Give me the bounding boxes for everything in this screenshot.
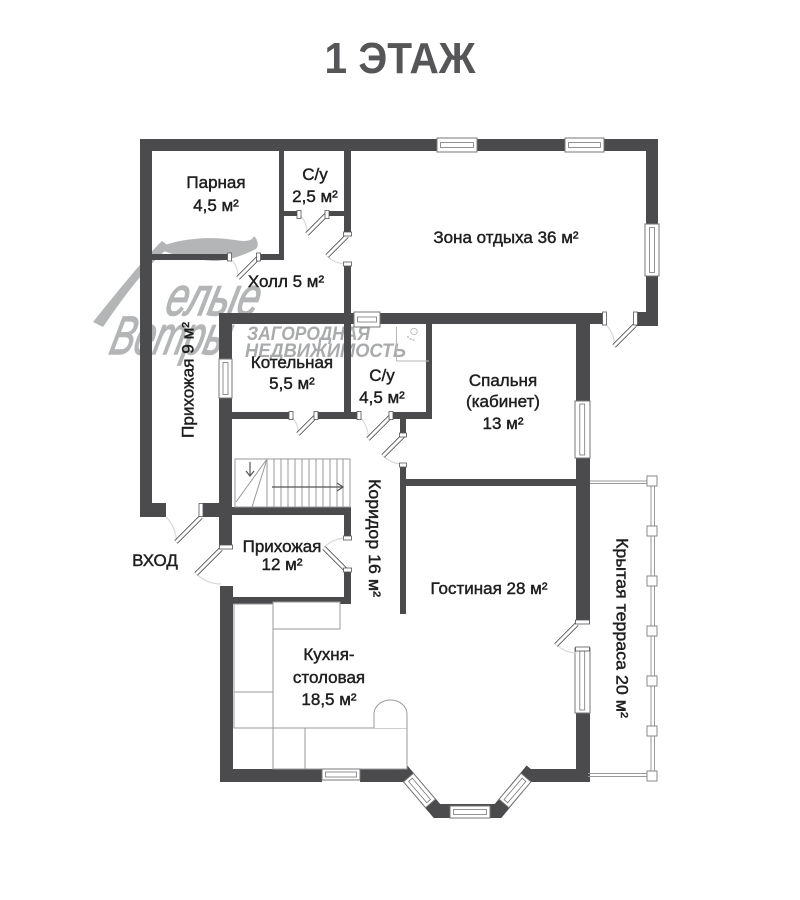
svg-text:Парная: Парная [186,173,245,192]
svg-text:Крытая терраса 20 м²: Крытая терраса 20 м² [613,538,632,718]
svg-text:4,5 м²: 4,5 м² [193,196,239,215]
svg-text:Холл 5 м²: Холл 5 м² [248,272,325,291]
svg-text:4,5 м²: 4,5 м² [359,388,405,407]
svg-text:(кабинет): (кабинет) [466,392,540,411]
svg-text:1 ЭТАЖ: 1 ЭТАЖ [325,34,476,83]
svg-text:Кухня-: Кухня- [303,645,354,664]
svg-text:С/у: С/у [369,366,395,385]
svg-text:13 м²: 13 м² [483,414,524,433]
svg-text:Гостиная 28 м²: Гостиная 28 м² [430,579,547,598]
svg-text:2,5 м²: 2,5 м² [292,187,338,206]
svg-text:18,5 м²: 18,5 м² [301,690,356,709]
svg-text:ВХОД: ВХОД [132,551,178,570]
svg-text:Коридор 16 м²: Коридор 16 м² [365,479,384,597]
svg-text:Спальня: Спальня [469,371,537,390]
svg-text:Прихожая 9 м²: Прихожая 9 м² [179,322,198,438]
svg-text:5,5 м²: 5,5 м² [269,374,315,393]
svg-text:Зона отдыха 36 м²: Зона отдыха 36 м² [433,228,579,247]
svg-text:Прихожая: Прихожая [243,537,322,556]
svg-text:Котельная: Котельная [251,353,333,372]
svg-text:столовая: столовая [293,668,365,687]
svg-text:С/у: С/у [302,165,328,184]
svg-text:12 м²: 12 м² [262,555,303,574]
